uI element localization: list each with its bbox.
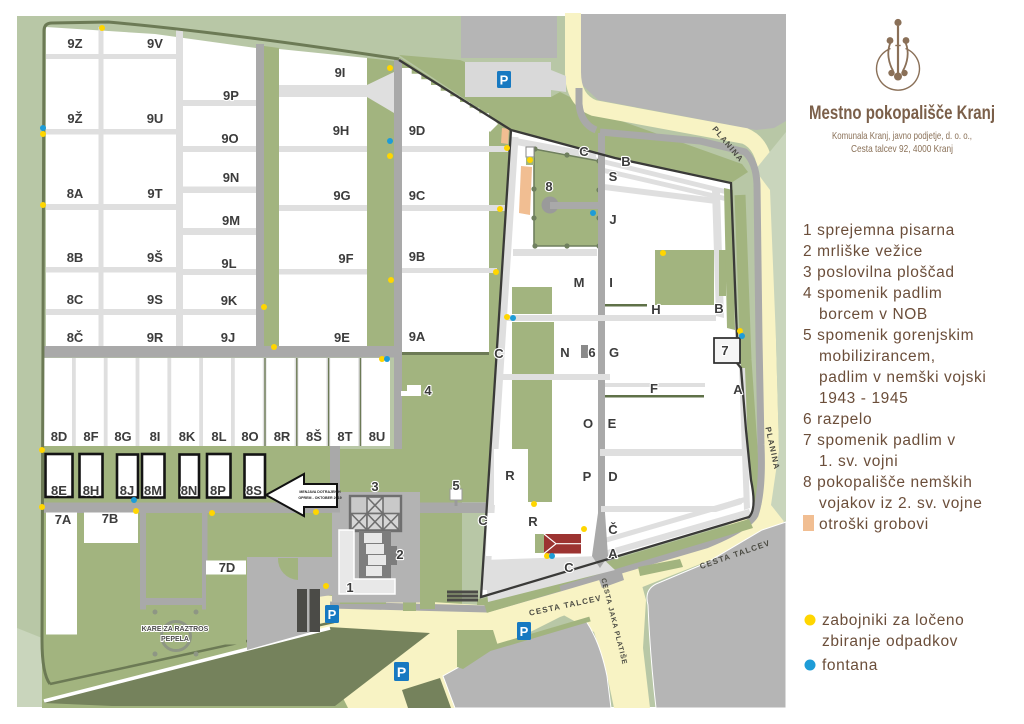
svg-text:9M: 9M — [222, 213, 240, 228]
svg-text:6: 6 — [588, 345, 595, 360]
svg-text:8A: 8A — [67, 186, 84, 201]
svg-text:P: P — [328, 607, 337, 622]
svg-text:4 spomenik padlim: 4 spomenik padlim — [803, 285, 942, 302]
svg-text:E: E — [608, 416, 617, 431]
svg-text:Č: Č — [608, 522, 618, 537]
svg-text:8S: 8S — [246, 483, 262, 498]
svg-text:9C: 9C — [409, 188, 426, 203]
svg-text:2: 2 — [396, 547, 403, 562]
svg-text:8L: 8L — [211, 429, 226, 444]
svg-text:2 mrliške vežice: 2 mrliške vežice — [803, 243, 923, 260]
svg-text:7B: 7B — [102, 511, 119, 526]
svg-text:9R: 9R — [147, 330, 164, 345]
svg-text:1 sprejemna pisarna: 1 sprejemna pisarna — [803, 222, 955, 239]
svg-text:Cesta talcev 92, 4000 Kranj: Cesta talcev 92, 4000 Kranj — [851, 143, 953, 155]
svg-text:PEPELA: PEPELA — [161, 636, 189, 643]
svg-text:9G: 9G — [333, 188, 350, 203]
svg-text:8F: 8F — [83, 429, 98, 444]
svg-text:9V: 9V — [147, 36, 163, 51]
svg-text:4: 4 — [424, 383, 432, 398]
svg-text:R: R — [528, 514, 538, 529]
svg-text:1943 - 1945: 1943 - 1945 — [819, 390, 908, 407]
svg-text:9E: 9E — [334, 330, 350, 345]
svg-text:C: C — [579, 144, 589, 159]
svg-text:vojakov iz 2. sv. vojne: vojakov iz 2. sv. vojne — [819, 495, 982, 512]
svg-text:7D: 7D — [219, 560, 236, 575]
svg-text:9U: 9U — [147, 111, 164, 126]
svg-text:B: B — [714, 301, 723, 316]
svg-text:8J: 8J — [120, 483, 134, 498]
svg-text:G: G — [609, 345, 619, 360]
svg-text:Mestno pokopališče Kranj: Mestno pokopališče Kranj — [809, 103, 995, 124]
svg-text:8B: 8B — [67, 250, 84, 265]
svg-text:8G: 8G — [114, 429, 131, 444]
svg-text:8O: 8O — [241, 429, 258, 444]
svg-text:C: C — [564, 560, 574, 575]
svg-text:borcem v NOB: borcem v NOB — [819, 306, 928, 323]
svg-text:P: P — [520, 624, 529, 639]
svg-text:8H: 8H — [83, 483, 100, 498]
svg-text:8Š: 8Š — [306, 429, 322, 444]
svg-text:8D: 8D — [51, 429, 68, 444]
svg-text:6 razpelo: 6 razpelo — [803, 411, 872, 428]
svg-text:8 pokopališče nemških: 8 pokopališče nemških — [803, 474, 972, 491]
svg-text:zabojniki za ločeno: zabojniki za ločeno — [822, 612, 964, 629]
svg-text:9Z: 9Z — [67, 36, 82, 51]
svg-text:8R: 8R — [274, 429, 291, 444]
svg-text:B: B — [621, 154, 630, 169]
svg-text:8Č: 8Č — [67, 330, 84, 345]
svg-text:9K: 9K — [221, 293, 238, 308]
svg-text:9S: 9S — [147, 292, 163, 307]
svg-text:8M: 8M — [144, 483, 162, 498]
svg-text:7 spomenik padlim v: 7 spomenik padlim v — [803, 432, 956, 449]
svg-text:P: P — [397, 664, 406, 680]
svg-text:9J: 9J — [221, 330, 235, 345]
svg-text:9A: 9A — [409, 329, 426, 344]
svg-text:8C: 8C — [67, 292, 84, 307]
svg-text:9T: 9T — [147, 186, 162, 201]
svg-text:S: S — [609, 169, 618, 184]
svg-text:F: F — [650, 381, 658, 396]
svg-text:1. sv. vojni: 1. sv. vojni — [819, 453, 898, 470]
svg-text:fontana: fontana — [822, 657, 878, 674]
svg-text:9I: 9I — [335, 65, 346, 80]
svg-text:D: D — [608, 469, 617, 484]
svg-text:MENJAVA DOTRAJENIH: MENJAVA DOTRAJENIH — [299, 490, 341, 494]
svg-text:5 spomenik gorenjskim: 5 spomenik gorenjskim — [803, 327, 974, 344]
svg-text:8K: 8K — [179, 429, 196, 444]
svg-text:9F: 9F — [338, 251, 353, 266]
svg-text:J: J — [609, 212, 616, 227]
svg-text:P: P — [583, 469, 592, 484]
svg-text:C: C — [494, 346, 504, 361]
svg-text:9D: 9D — [409, 123, 426, 138]
svg-text:3: 3 — [371, 479, 378, 494]
svg-text:8E: 8E — [51, 483, 67, 498]
svg-text:8P: 8P — [210, 483, 226, 498]
svg-text:mobilizirancem,: mobilizirancem, — [819, 348, 936, 365]
svg-text:A: A — [608, 546, 618, 561]
svg-text:9Ž: 9Ž — [67, 111, 82, 126]
svg-text:9L: 9L — [221, 256, 236, 271]
svg-text:1: 1 — [346, 580, 353, 595]
svg-text:9O: 9O — [221, 131, 238, 146]
svg-text:8I: 8I — [150, 429, 161, 444]
svg-text:A: A — [733, 382, 743, 397]
svg-text:H: H — [651, 302, 660, 317]
svg-text:8U: 8U — [369, 429, 386, 444]
svg-text:KARE ZA RAZTROS: KARE ZA RAZTROS — [142, 626, 209, 633]
svg-text:7A: 7A — [55, 512, 72, 527]
svg-text:8N: 8N — [181, 483, 198, 498]
svg-text:7: 7 — [721, 343, 728, 358]
svg-text:M: M — [574, 275, 585, 290]
svg-text:otroški grobovi: otroški grobovi — [819, 516, 929, 533]
svg-text:9H: 9H — [333, 123, 350, 138]
svg-text:9P: 9P — [223, 88, 239, 103]
svg-text:I: I — [609, 275, 613, 290]
svg-text:3 poslovilna ploščad: 3 poslovilna ploščad — [803, 264, 955, 281]
svg-text:padlim v nemški vojski: padlim v nemški vojski — [819, 369, 986, 386]
svg-text:OPREM - OKTOBER 2019: OPREM - OKTOBER 2019 — [298, 496, 341, 500]
svg-text:N: N — [560, 345, 569, 360]
svg-text:zbiranje odpadkov: zbiranje odpadkov — [822, 633, 958, 650]
svg-text:Komunala Kranj, javno podjetje: Komunala Kranj, javno podjetje, d. o. o.… — [832, 130, 972, 142]
svg-text:5: 5 — [452, 478, 459, 493]
svg-text:9B: 9B — [409, 249, 426, 264]
svg-text:9N: 9N — [223, 170, 240, 185]
svg-text:O: O — [583, 416, 593, 431]
svg-text:R: R — [505, 468, 515, 483]
svg-text:9Š: 9Š — [147, 250, 163, 265]
svg-text:P: P — [500, 73, 509, 88]
svg-text:8: 8 — [545, 179, 552, 194]
svg-text:C: C — [478, 513, 488, 528]
svg-text:8T: 8T — [337, 429, 352, 444]
